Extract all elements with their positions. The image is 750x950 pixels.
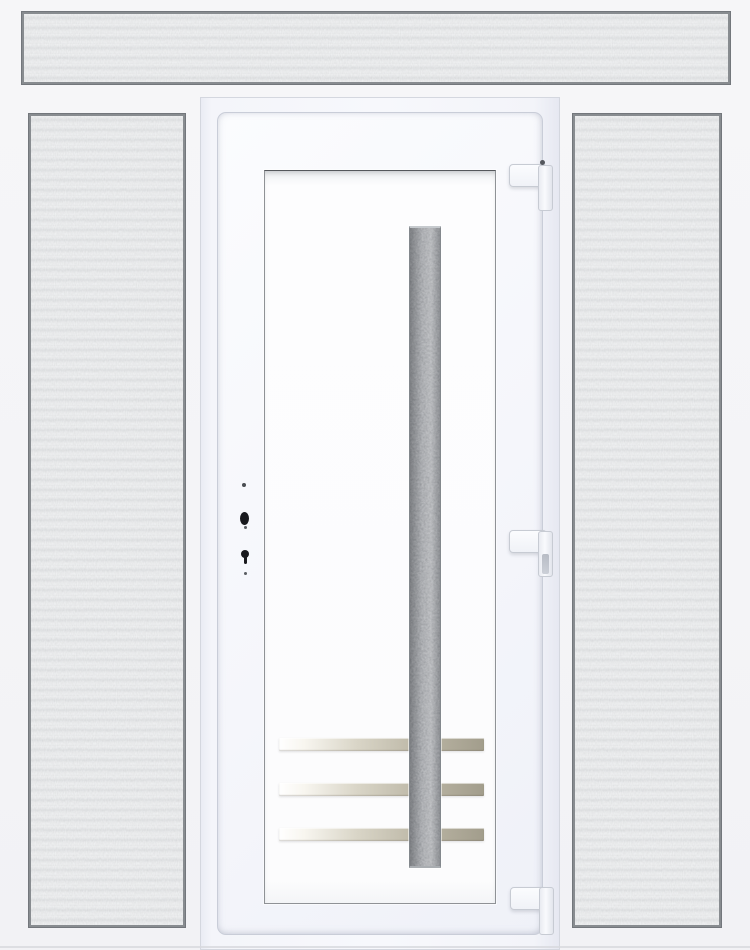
right-sidelight	[573, 114, 721, 927]
steel-strip-top	[279, 738, 484, 751]
door-frame	[200, 97, 560, 950]
hinge-barrel	[538, 165, 553, 211]
hinge-barrel	[539, 887, 554, 935]
spindle-hole	[240, 512, 249, 525]
dark-glass-texture	[410, 228, 440, 866]
screw-dot-top	[242, 483, 246, 487]
door-product-photo	[0, 0, 750, 950]
keyhole	[241, 550, 249, 558]
hinge-shadow	[542, 554, 549, 574]
transom-window	[22, 12, 730, 84]
floor-shadow-line	[0, 946, 750, 948]
left-sidelight-glass-texture	[31, 116, 183, 925]
transom-glass-texture	[24, 14, 728, 82]
steel-strip-bottom	[279, 828, 484, 841]
left-sidelight	[29, 114, 185, 927]
right-sidelight-glass-texture	[575, 116, 719, 925]
hinge-pin-icon	[540, 160, 545, 165]
door-glass-insert	[409, 226, 441, 868]
screw-dot-middle	[244, 526, 247, 529]
screw-dot-bottom	[244, 572, 247, 575]
steel-strip-middle	[279, 783, 484, 796]
